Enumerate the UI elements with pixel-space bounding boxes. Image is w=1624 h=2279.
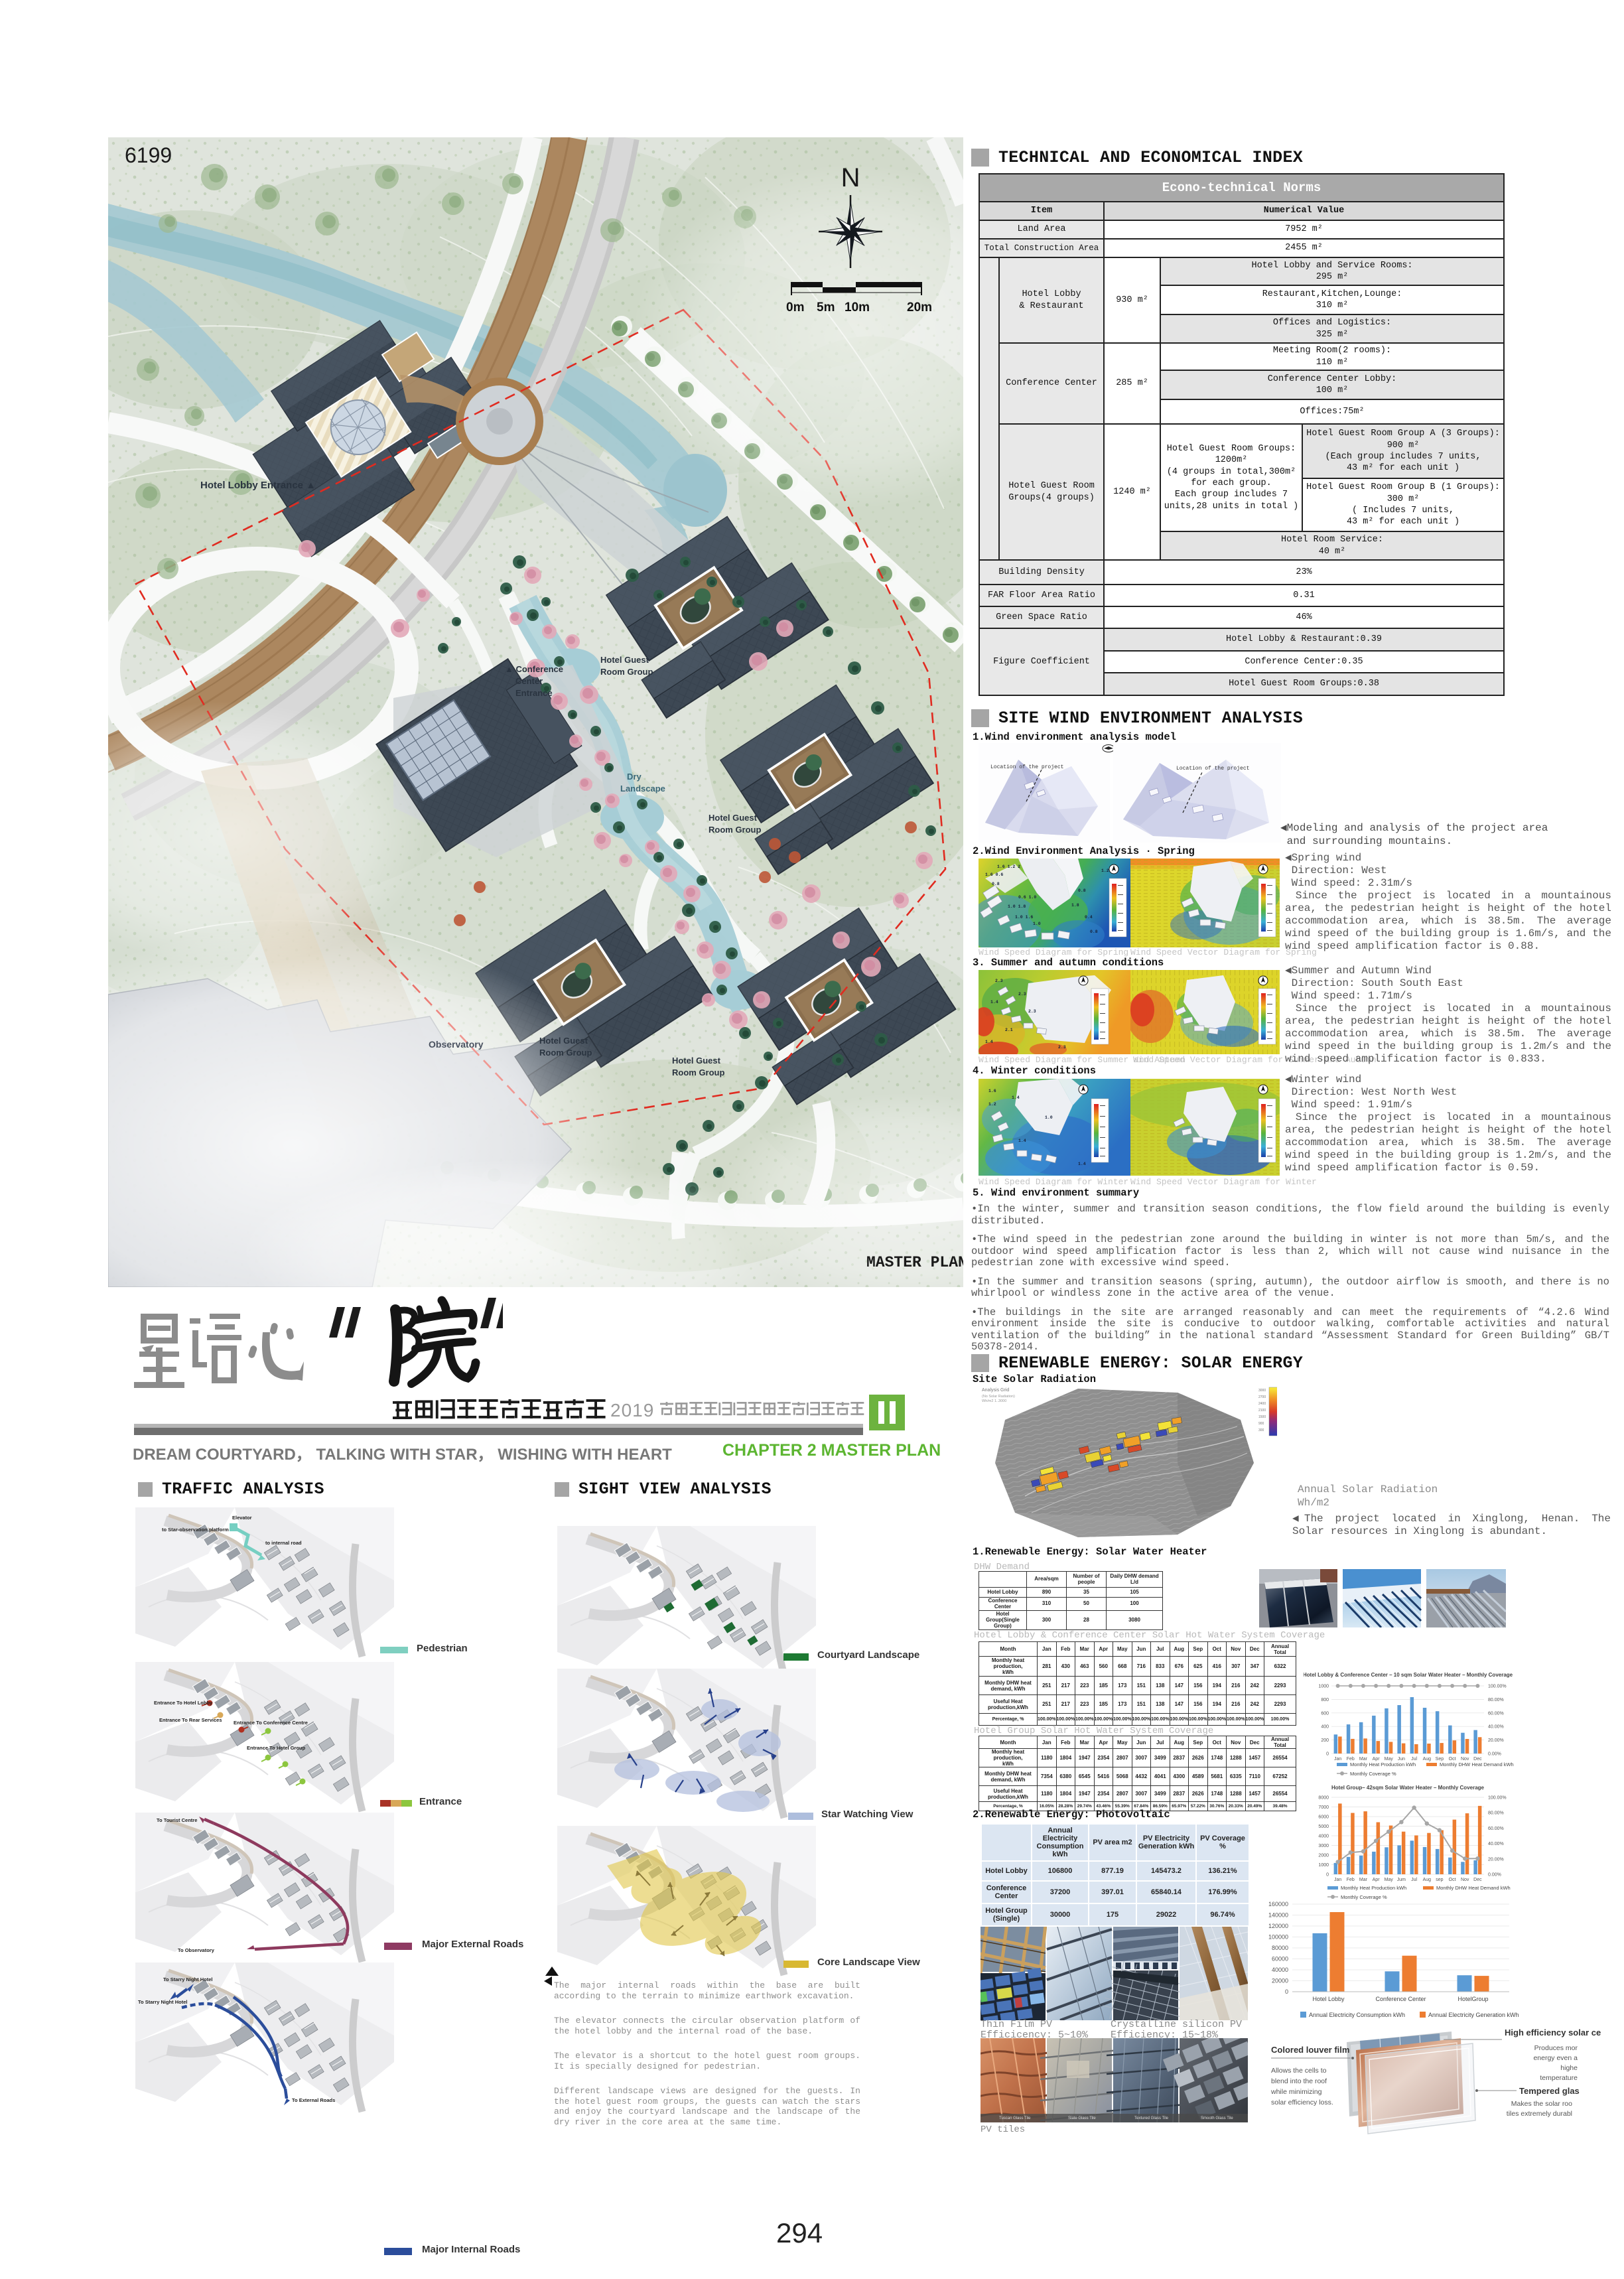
svg-text:Entrance To Rear Services: Entrance To Rear Services [159, 1717, 222, 1723]
svg-text:120000: 120000 [1268, 1923, 1288, 1929]
svg-text:0: 0 [1285, 1988, 1288, 1995]
svg-text:Apr: Apr [1373, 1757, 1381, 1761]
svg-text:sep: sep [1436, 1878, 1443, 1882]
svg-text:Elevator: Elevator [232, 1515, 252, 1521]
svg-text:40.00%: 40.00% [1488, 1725, 1504, 1730]
svg-text:400: 400 [1321, 1725, 1329, 1730]
svg-text:Textured Glass Tile: Textured Glass Tile [1134, 2116, 1169, 2120]
svg-text:2100: 2100 [1258, 1409, 1266, 1413]
svg-text:Entrance To Hotel Lobby: Entrance To Hotel Lobby [154, 1700, 213, 1706]
svg-text:1.2: 1.2 [988, 1102, 996, 1107]
svg-text:7000: 7000 [1318, 1805, 1329, 1810]
svg-text:while minimizing: while minimizing [1270, 2088, 1322, 2096]
svg-text:blend into the roof: blend into the roof [1271, 2077, 1327, 2085]
svg-text:300: 300 [1258, 1428, 1264, 1432]
svg-text:Mar: Mar [1359, 1757, 1368, 1761]
svg-text:0.00%: 0.00% [1488, 1873, 1501, 1878]
svg-text:Wh/m2 1..3000: Wh/m2 1..3000 [982, 1399, 1006, 1403]
svg-text:Annual Electricity Generation: Annual Electricity Generation kWh [1428, 2012, 1519, 2018]
svg-text:20.00%: 20.00% [1488, 1738, 1504, 1743]
svg-text:Hotel Lobby: Hotel Lobby [1312, 1996, 1345, 2002]
svg-text:100000: 100000 [1268, 1934, 1288, 1941]
svg-text:0: 0 [1326, 1873, 1329, 1878]
svg-text:To Starry Night Hotel: To Starry Night Hotel [138, 1999, 187, 2005]
svg-text:1.4: 1.4 [985, 1040, 993, 1044]
svg-text:tiles extremely durabl: tiles extremely durabl [1507, 2110, 1572, 2118]
svg-text:Mar: Mar [1359, 1878, 1368, 1882]
svg-text:Annual Electricity Consumption: Annual Electricity Consumption kWh [1309, 2012, 1405, 2018]
svg-text:HotelGroup: HotelGroup [1457, 1996, 1488, 2002]
svg-text:Observatory: Observatory [429, 1039, 484, 1050]
svg-text:6000: 6000 [1318, 1815, 1329, 1820]
svg-text:Dry: Dry [627, 772, 642, 782]
svg-text:100.00%: 100.00% [1488, 1796, 1507, 1801]
svg-text:to Star-observation platform: to Star-observation platform [162, 1527, 229, 1533]
svg-text:Hotel Lobby & Conference Cente: Hotel Lobby & Conference Center – 10 sqm… [1304, 1672, 1513, 1678]
svg-text:Smooth Glass Tile: Smooth Glass Tile [1201, 2116, 1233, 2120]
svg-text:Location of the project: Location of the project [1176, 766, 1249, 772]
svg-text:▲ Conference: ▲ Conference [505, 664, 563, 674]
svg-text:140000: 140000 [1268, 1912, 1288, 1919]
svg-text:Analysis Grid: Analysis Grid [982, 1388, 1009, 1393]
svg-text:6199: 6199 [125, 143, 172, 167]
svg-text:Tempered glas: Tempered glas [1519, 2086, 1580, 2096]
svg-text:Monthly Heat Production kWh: Monthly Heat Production kWh [1350, 1761, 1416, 1767]
svg-text:Room Group: Room Group [672, 1068, 724, 1077]
svg-text:Slate Glass Tile: Slate Glass Tile [1068, 2116, 1096, 2120]
svg-text:80.00%: 80.00% [1488, 1698, 1504, 1702]
svg-text:2.3: 2.3 [1058, 1045, 1066, 1050]
svg-text:Monthly Heat Production kWh: Monthly Heat Production kWh [1341, 1885, 1406, 1891]
svg-text:Hotel Guest: Hotel Guest [709, 813, 758, 823]
svg-text:1.4: 1.4 [990, 1000, 998, 1004]
svg-text:Monthly DHW Heat Demand kWh: Monthly DHW Heat Demand kWh [1440, 1761, 1514, 1767]
svg-text:160000: 160000 [1268, 1901, 1288, 1907]
svg-text:Hotel Guest: Hotel Guest [672, 1056, 721, 1066]
svg-text:Room Group: Room Group [539, 1048, 592, 1058]
svg-text:Hotel Lobby Entrance ▲: Hotel Lobby Entrance ▲ [200, 480, 316, 491]
svg-text:May: May [1385, 1757, 1394, 1761]
svg-text:2.3: 2.3 [1018, 992, 1026, 997]
svg-text:Room Group: Room Group [600, 667, 653, 677]
svg-text:5000: 5000 [1318, 1825, 1329, 1829]
svg-text:40.00%: 40.00% [1488, 1842, 1504, 1846]
svg-text:10m: 10m [845, 301, 870, 314]
svg-text:900: 900 [1258, 1422, 1264, 1426]
svg-text:1.4: 1.4 [1078, 1162, 1086, 1166]
svg-text:1.0: 1.0 [1033, 922, 1041, 926]
svg-text:80.00%: 80.00% [1488, 1811, 1504, 1816]
svg-text:Colored louver film: Colored louver film [1271, 2045, 1349, 2055]
svg-text:2.3: 2.3 [1028, 1009, 1036, 1014]
svg-text:3000: 3000 [1258, 1389, 1266, 1393]
svg-text:Aug: Aug [1423, 1757, 1432, 1761]
svg-text:Nov: Nov [1461, 1757, 1469, 1761]
svg-text:1000: 1000 [1318, 1685, 1329, 1689]
svg-text:60000: 60000 [1272, 1956, 1288, 1963]
svg-text:0m: 0m [786, 301, 804, 314]
svg-text:Jan: Jan [1334, 1757, 1341, 1761]
svg-text:1.0: 1.0 [1045, 1115, 1053, 1120]
svg-text:0: 0 [1326, 1752, 1329, 1757]
svg-text:200: 200 [1321, 1738, 1329, 1743]
svg-text:4000: 4000 [1318, 1834, 1329, 1839]
svg-text:Aug: Aug [1423, 1878, 1432, 1882]
svg-text:2000: 2000 [1318, 1854, 1329, 1858]
svg-text:Jun: Jun [1398, 1757, 1405, 1761]
svg-text:Jul: Jul [1411, 1757, 1417, 1761]
svg-text:highe: highe [1560, 2064, 1578, 2072]
svg-text:5m: 5m [817, 301, 835, 314]
svg-text:80000: 80000 [1272, 1945, 1288, 1951]
svg-text:Feb: Feb [1347, 1757, 1355, 1761]
svg-text:Entrance: Entrance [515, 688, 553, 698]
svg-text:60.00%: 60.00% [1488, 1711, 1504, 1716]
svg-text:temperature: temperature [1540, 2074, 1578, 2082]
svg-text:Nov: Nov [1461, 1878, 1469, 1882]
svg-text:0.8: 0.8 [1090, 930, 1098, 934]
svg-text:1.8: 1.8 [1071, 903, 1079, 908]
svg-text:8000: 8000 [1318, 1796, 1329, 1801]
svg-text:1500: 1500 [1258, 1415, 1266, 1419]
svg-text:Oct: Oct [1449, 1878, 1456, 1882]
svg-text:Oct: Oct [1449, 1757, 1456, 1761]
svg-text:Jan: Jan [1334, 1878, 1341, 1882]
svg-text:Entrance To Conference Centre: Entrance To Conference Centre [234, 1720, 308, 1726]
svg-text:0.8: 0.8 [992, 882, 1000, 886]
svg-text:20000: 20000 [1272, 1978, 1288, 1984]
svg-text:Dec: Dec [1473, 1878, 1482, 1882]
svg-text:Jum: Jum [1397, 1878, 1406, 1882]
svg-text:Apr: Apr [1373, 1878, 1381, 1882]
svg-text:To External Roads: To External Roads [292, 2097, 335, 2103]
svg-text:Landscape: Landscape [620, 784, 665, 794]
svg-text:20.00%: 20.00% [1488, 1857, 1504, 1862]
svg-text:To Observatory: To Observatory [178, 1947, 215, 1953]
svg-text:600: 600 [1321, 1711, 1329, 1716]
svg-text:energy even a: energy even a [1533, 2054, 1578, 2062]
svg-text:Sep: Sep [1436, 1757, 1444, 1761]
svg-text:20m: 20m [907, 301, 932, 314]
svg-text:Produces mor: Produces mor [1534, 2044, 1578, 2052]
svg-text:0.6 1.0: 0.6 1.0 [1018, 895, 1036, 900]
svg-text:N: N [841, 163, 860, 192]
svg-text:100.00%: 100.00% [1488, 1685, 1507, 1689]
svg-text:MASTER PLAN: MASTER PLAN [866, 1254, 963, 1271]
svg-text:1000: 1000 [1318, 1863, 1329, 1868]
svg-text:Feb: Feb [1347, 1878, 1355, 1882]
svg-text:Entrance To Hotel Group: Entrance To Hotel Group [247, 1745, 306, 1751]
svg-text:Hotel Group– 42sqm Solar Water: Hotel Group– 42sqm Solar Water Heater – … [1331, 1785, 1485, 1791]
svg-text:1.0 1.6: 1.0 1.6 [1015, 915, 1033, 920]
svg-text:Jul: Jul [1411, 1878, 1417, 1882]
svg-text:2400: 2400 [1258, 1402, 1266, 1406]
svg-text:1.4: 1.4 [1018, 1139, 1026, 1143]
svg-text:To Starry Night Hotel: To Starry Night Hotel [163, 1976, 212, 1982]
svg-text:0.8: 0.8 [1078, 888, 1086, 893]
svg-text:Monthly DHW Heat Demand kWh: Monthly DHW Heat Demand kWh [1436, 1885, 1511, 1891]
svg-text:Monthly Coverage %: Monthly Coverage % [1350, 1771, 1396, 1777]
svg-text:High efficiency solar ce: High efficiency solar ce [1505, 2028, 1601, 2037]
svg-text:Room Group: Room Group [709, 825, 761, 835]
svg-text:0.4: 0.4 [1085, 915, 1093, 920]
svg-text:Tuscan Glass Tile: Tuscan Glass Tile [999, 2116, 1031, 2120]
svg-text:solar efficiency loss.: solar efficiency loss. [1271, 2099, 1333, 2106]
svg-text:May: May [1385, 1878, 1394, 1882]
svg-text:2.3: 2.3 [995, 979, 1003, 983]
svg-text:1.6 0.6: 1.6 0.6 [985, 872, 1003, 877]
svg-text:to internal road: to internal road [265, 1540, 302, 1546]
svg-text:Center: Center [515, 676, 543, 686]
svg-text:Location of the project: Location of the project [990, 764, 1063, 770]
svg-text:Allows the cells to: Allows the cells to [1271, 2067, 1327, 2075]
svg-text:To Tourist Centre: To Tourist Centre [157, 1817, 197, 1823]
svg-text:Hotel Guest: Hotel Guest [539, 1036, 588, 1046]
svg-text:Makes the solar roo: Makes the solar roo [1511, 2100, 1572, 2108]
svg-text:Dec: Dec [1473, 1757, 1482, 1761]
svg-text:0.00%: 0.00% [1488, 1752, 1501, 1757]
svg-text:3000: 3000 [1318, 1844, 1329, 1848]
svg-text:40000: 40000 [1272, 1967, 1288, 1973]
svg-text:1.6: 1.6 [988, 1089, 996, 1093]
svg-text:1.4: 1.4 [1012, 1095, 1020, 1100]
svg-text:Conference Center: Conference Center [1375, 1996, 1426, 2002]
svg-text:60.00%: 60.00% [1488, 1827, 1504, 1831]
svg-text:1.6 1.2 2: 1.6 1.2 2 [997, 864, 1020, 869]
svg-text:(No Solar Radiation): (No Solar Radiation) [982, 1395, 1015, 1399]
svg-text:2.1: 2.1 [1005, 1028, 1013, 1032]
svg-text:Hotel Guest: Hotel Guest [600, 655, 649, 665]
svg-text:2700: 2700 [1258, 1395, 1266, 1399]
svg-text:1.0 1.8: 1.0 1.8 [1008, 904, 1026, 909]
svg-text:800: 800 [1321, 1698, 1329, 1702]
